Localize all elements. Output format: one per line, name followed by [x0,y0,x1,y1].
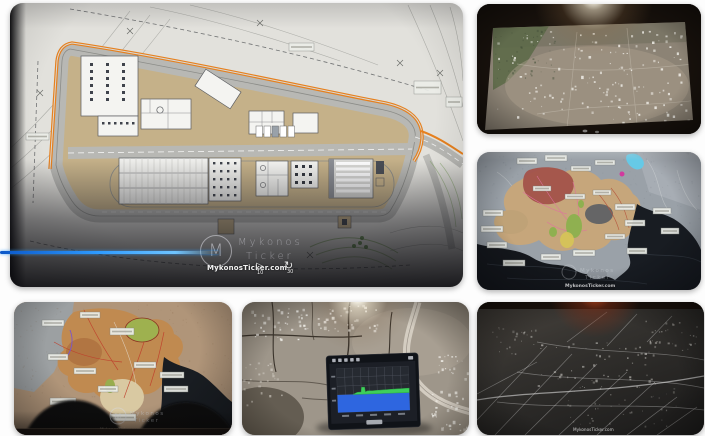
chart-water-area [337,393,410,413]
watermark-name-line1: Mykonos [130,411,165,417]
aerial-3d-svg [477,4,701,134]
zoning-map-svg: Mykonos Ticker MykonosTicker.com [477,152,701,290]
photo-left-edge [10,3,26,287]
watermark-name-line1: Mykonos [238,237,303,248]
site-plan-drawing [10,3,463,287]
laser-pointer-line [0,251,219,254]
zone-orange-dark [66,338,102,366]
photo-cadastral-aerial: MykonosTicker.com [477,302,704,435]
terrain-screen [477,14,701,134]
logo-letter: M [115,413,122,422]
cadastral-svg: MykonosTicker.com [477,302,704,435]
watermark-name-line2: Ticker [584,275,610,281]
watermark-url: MykonosTicker.com [573,427,614,432]
watermark-url: MykonosTicker.com [207,264,287,272]
battery-icon [408,356,413,360]
skip-forward-label: 30 [287,269,293,275]
screen-bezel-bottom [14,429,232,435]
dark-terrain [477,302,704,435]
photo-island-map-audience: M Mykonos Ticker MykonosTicker.com [14,302,232,435]
magenta-marker [620,172,625,177]
zone-dark [585,204,613,224]
photo-site-plan: M Mykonos Ticker MykonosTicker.com ▷ 10 … [10,3,463,287]
watermark-url: MykonosTicker.com [565,283,616,289]
parking-cars [256,126,295,137]
zone-yellow [560,232,574,248]
skip-forward-control[interactable]: ↻ 30 [284,259,293,272]
aerial-tablet-svg [242,302,469,435]
skip-back-control[interactable]: ▷ 10 [256,261,264,272]
tablet-device[interactable] [326,353,421,430]
screen-top-edge [477,302,704,309]
photo-collage: M Mykonos Ticker MykonosTicker.com ▷ 10 … [0,0,705,436]
photo-aerial-with-tablet [242,302,469,435]
island-map-svg: M Mykonos Ticker MykonosTicker.com [14,302,232,435]
skip-back-label: 10 [257,270,263,276]
watermark-name-line2: Ticker [133,418,159,424]
watermark-name-line1: Mykonos [580,268,615,274]
photo-aerial-3d-screen [477,4,701,134]
photo-zoning-map: Mykonos Ticker MykonosTicker.com [477,152,701,290]
tablet-bottom-button[interactable] [366,420,382,425]
